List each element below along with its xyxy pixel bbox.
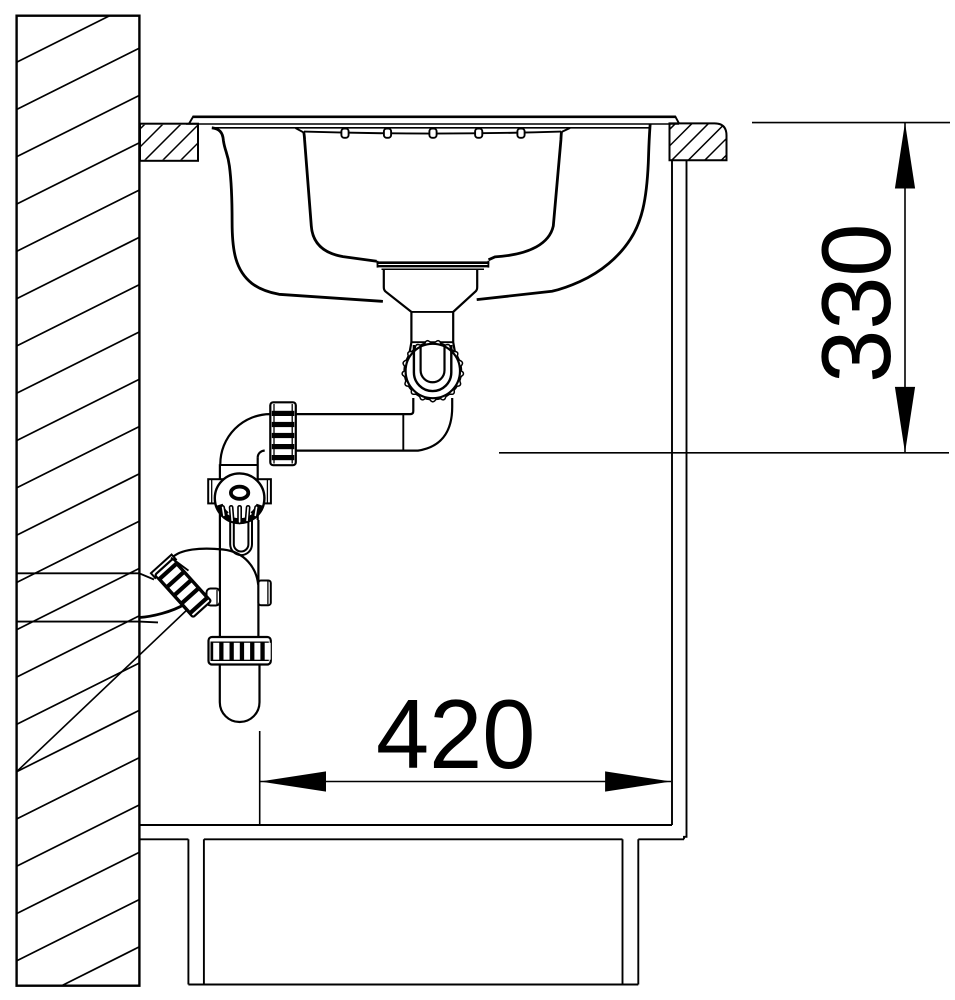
- svg-text:420: 420: [376, 679, 535, 790]
- svg-text:330: 330: [801, 224, 912, 383]
